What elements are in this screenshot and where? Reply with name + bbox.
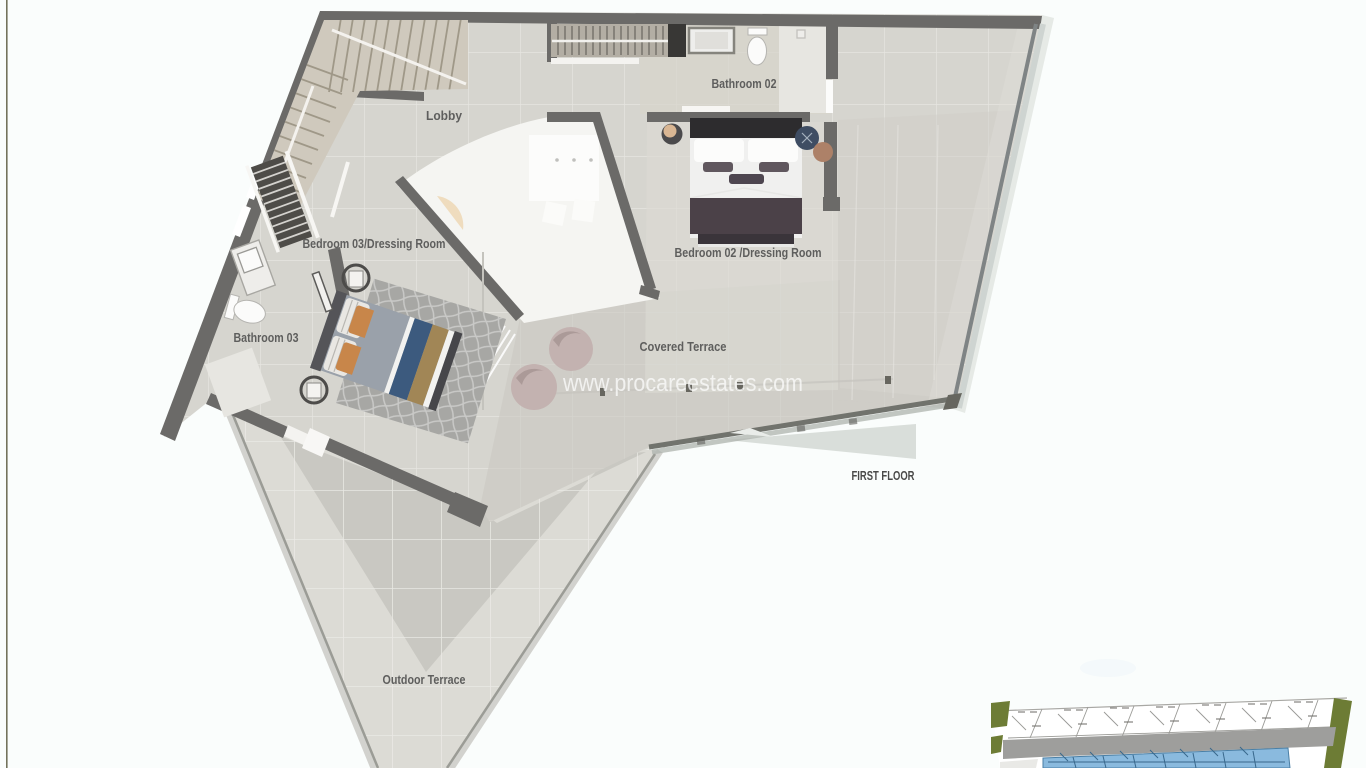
svg-text:Bathroom 02: Bathroom 02 (712, 77, 777, 91)
svg-text:www.procareestates.com: www.procareestates.com (562, 370, 803, 397)
svg-text:Bedroom 02 /Dressing Room: Bedroom 02 /Dressing Room (675, 246, 822, 260)
svg-text:Bathroom 03: Bathroom 03 (234, 331, 299, 345)
svg-text:Lobby: Lobby (426, 109, 462, 123)
svg-text:FIRST FLOOR: FIRST FLOOR (852, 469, 915, 483)
svg-text:Covered Terrace: Covered Terrace (640, 340, 727, 354)
svg-text:Bedroom 03/Dressing Room: Bedroom 03/Dressing Room (303, 237, 446, 251)
svg-text:Outdoor Terrace: Outdoor Terrace (383, 673, 466, 687)
